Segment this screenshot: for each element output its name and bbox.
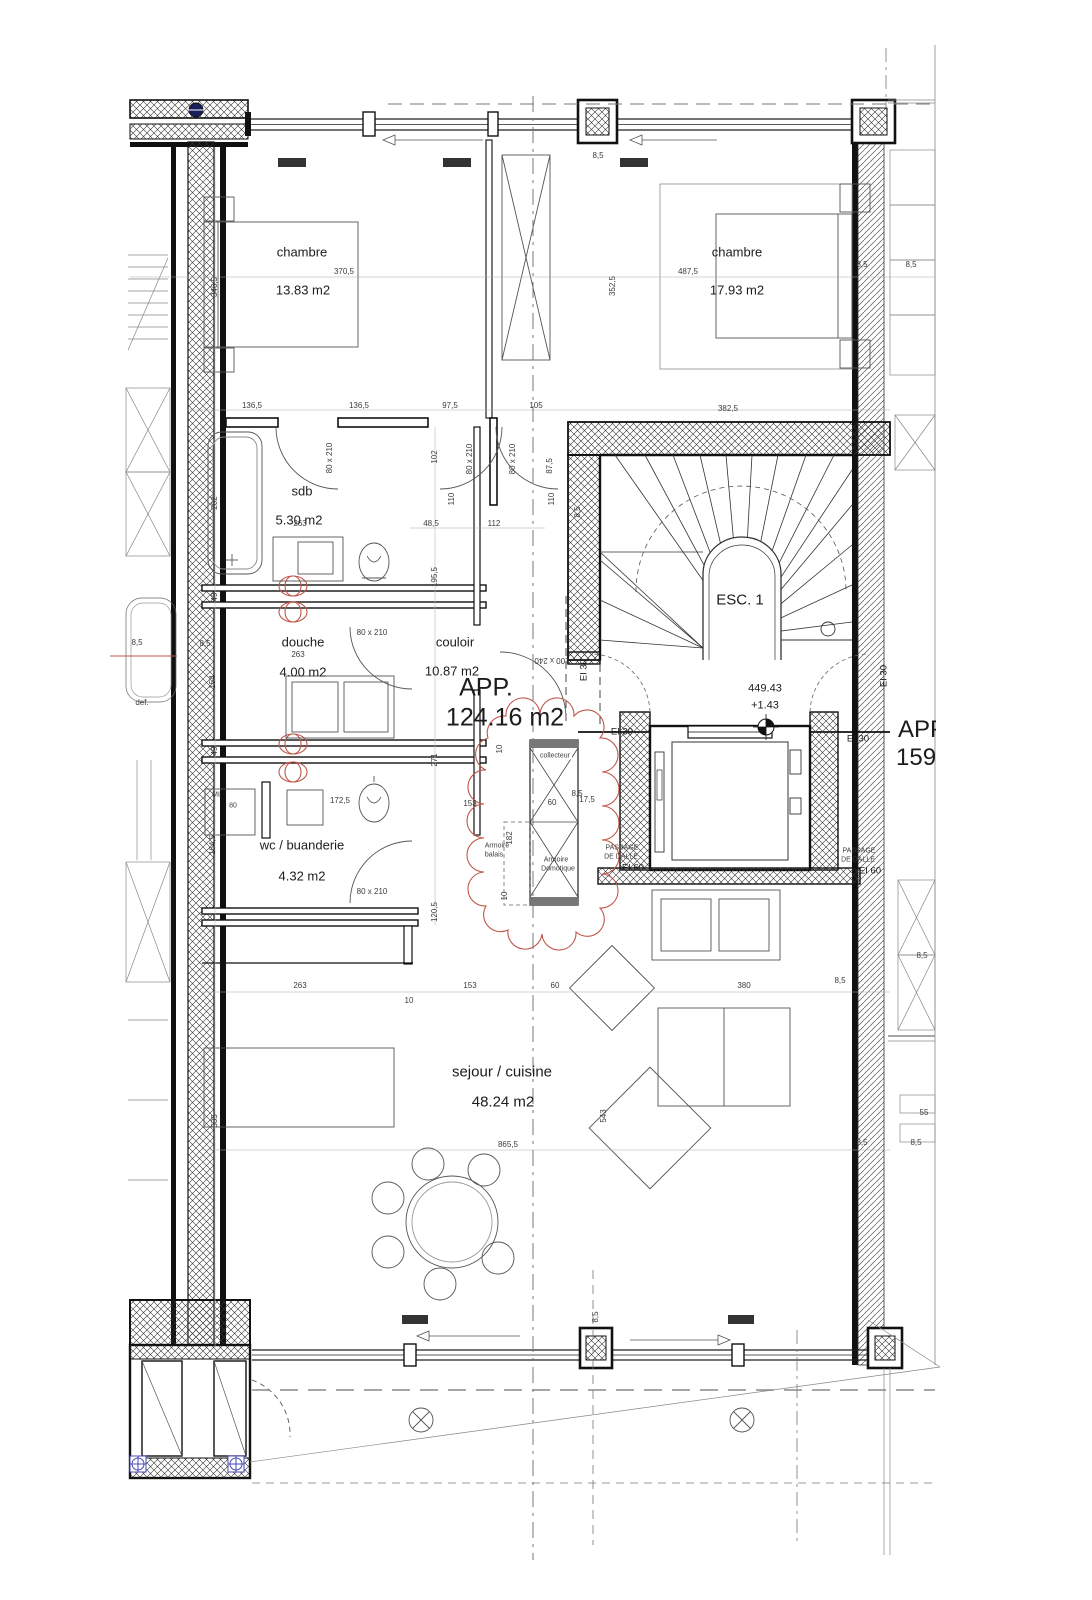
- dim-label: 10: [496, 745, 504, 754]
- dim-label: 8,5: [834, 977, 845, 985]
- armoire-domotique-label: Domotique: [541, 866, 575, 873]
- dim-label: 164,5: [209, 835, 217, 855]
- dim-label: 202: [211, 496, 219, 509]
- dim-label: 8,5: [910, 1139, 921, 1147]
- room-area-chambre-1: 13.83 m2: [276, 284, 330, 297]
- ml-label: ML: [212, 792, 222, 799]
- room-label-douche: douche: [282, 636, 325, 649]
- fire-passage-label: DE DALLE: [841, 857, 875, 864]
- fire-passage-label: EI 60: [859, 866, 881, 876]
- level-altitude: 449.43: [748, 684, 782, 695]
- dim-label: 370,5: [334, 268, 354, 276]
- dim-label: 352,5: [609, 276, 617, 296]
- fire-passage-label: PASSAGE: [606, 845, 639, 852]
- door-size-label: 80 x 210: [326, 443, 334, 474]
- door-size-label: 80 x 210: [466, 444, 474, 475]
- dim-label: 8,5: [199, 640, 210, 648]
- fire-passage-label: DE DALLE: [604, 854, 638, 861]
- dim-label: 346,5: [211, 277, 219, 297]
- room-label-sejour-cuisine: sejour / cuisine: [452, 1065, 552, 1080]
- dim-label: 153: [463, 800, 476, 808]
- dim-label: 271: [431, 753, 439, 766]
- room-area-sejour-cuisine: 48.24 m2: [472, 1095, 535, 1110]
- collecteur-label: collecteur: [538, 753, 572, 760]
- level-relative: +1.43: [751, 701, 779, 712]
- dim-label: 105: [529, 402, 542, 410]
- dim-label: 55: [920, 1109, 929, 1117]
- fire-rating-label: EI 30: [847, 734, 869, 744]
- armoire-balais-label: balais: [485, 852, 503, 859]
- dim-label: 97,5: [442, 402, 458, 410]
- fire-passage-label: EI 60: [622, 863, 644, 873]
- dim-label: 535: [211, 1114, 219, 1127]
- dim-label: 48,5: [423, 520, 439, 528]
- fire-rating-label: EI 30: [879, 665, 889, 687]
- armoire-domotique-label: Armoire: [544, 857, 569, 864]
- dim-label: 10: [501, 892, 509, 901]
- dim-label: 263: [291, 651, 304, 659]
- dim-label: 136,5: [349, 402, 369, 410]
- room-label-wc-buanderie: wc / buanderie: [260, 839, 345, 852]
- dim-label: 382,5: [718, 405, 738, 413]
- door-size-label: 100 x 240: [534, 656, 569, 664]
- dim-label: 112: [488, 520, 501, 528]
- dim-label: 8,5: [856, 1139, 867, 1147]
- dim-label: 172,5: [330, 797, 350, 805]
- dim-label: 153: [463, 982, 476, 990]
- dim-label: 195,5: [431, 567, 439, 587]
- fire-rating-label: EI 30: [611, 727, 633, 737]
- floor-plan-page: chambre13.83 m2chambre17.93 m2sdb5.30 m2…: [0, 0, 1092, 1600]
- apartment-label: APP.: [459, 676, 513, 701]
- dim-label: 8,5: [856, 261, 867, 269]
- door-size-label: 80 x 210: [357, 629, 388, 637]
- stair-label: ESC. 1: [716, 593, 764, 608]
- dim-label: 10: [405, 997, 414, 1005]
- door-size-label: 80 x 210: [357, 888, 388, 896]
- dim-label: 120,5: [431, 902, 439, 922]
- dim-label: 487,5: [678, 268, 698, 276]
- apartment-area: 124.16 m2: [446, 706, 564, 731]
- room-area-wc-buanderie: 4.32 m2: [279, 870, 326, 883]
- room-label-chambre-1: chambre: [277, 246, 328, 259]
- dim-label: 263: [293, 520, 306, 528]
- dim-label: 136,5: [242, 402, 262, 410]
- dim-label: 49: [211, 593, 219, 602]
- room-area-douche: 4.00 m2: [280, 666, 327, 679]
- dim-label: 182: [506, 831, 514, 844]
- dim-label: 8,5: [131, 639, 142, 647]
- room-label-chambre-2: chambre: [712, 246, 763, 259]
- dim-label: 543: [600, 1109, 608, 1122]
- fire-passage-label: PASSAGE: [843, 848, 876, 855]
- def-label: def.: [135, 699, 148, 707]
- room-label-sdb: sdb: [292, 485, 313, 498]
- dim-label: 8,5: [592, 152, 603, 160]
- dim-label: 17,5: [579, 796, 595, 804]
- dim-label: 49: [211, 747, 219, 756]
- room-label-couloir: couloir: [436, 636, 474, 649]
- plan-labels: chambre13.83 m2chambre17.93 m2sdb5.30 m2…: [0, 0, 1092, 1600]
- dim-label: 380: [737, 982, 750, 990]
- dim-label: 263: [293, 982, 306, 990]
- dim-label: 110: [548, 493, 556, 506]
- dim-label: 865,5: [498, 1141, 518, 1149]
- dim-label: 60: [548, 799, 557, 807]
- dim-label: 110: [448, 493, 456, 506]
- dim-label: 8,5: [905, 261, 916, 269]
- dim-label: 60: [551, 982, 560, 990]
- clip-mask: [936, 700, 996, 790]
- dim-label: 87,5: [546, 458, 554, 474]
- dim-label: 8,5: [574, 506, 582, 517]
- room-area-chambre-2: 17.93 m2: [710, 284, 764, 297]
- dim-label: 102: [431, 450, 439, 463]
- dim-label: 8,5: [916, 952, 927, 960]
- dim-label: 8,5: [592, 1311, 600, 1322]
- dim-label: 154: [209, 675, 217, 688]
- dim-label: 80: [229, 803, 237, 810]
- door-size-label: 80 x 210: [509, 444, 517, 475]
- fire-rating-label: EI 30: [579, 659, 589, 681]
